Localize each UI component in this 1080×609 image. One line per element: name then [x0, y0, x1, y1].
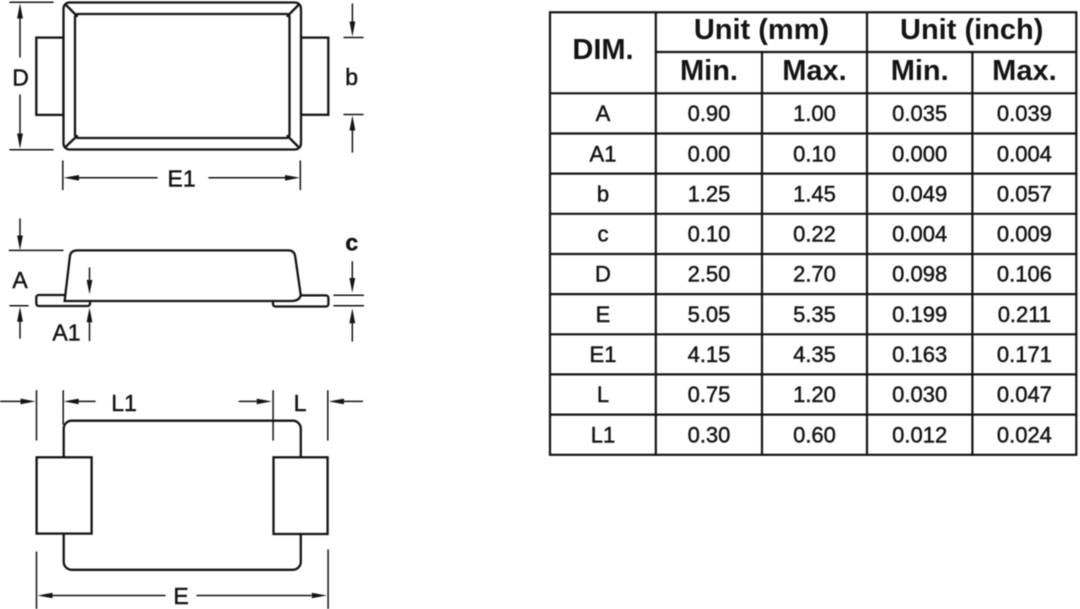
- svg-text:0.90: 0.90: [688, 101, 731, 126]
- svg-text:0.030: 0.030: [892, 382, 947, 407]
- svg-text:b: b: [597, 181, 609, 206]
- svg-text:0.163: 0.163: [892, 342, 947, 367]
- svg-text:E: E: [596, 302, 611, 327]
- svg-text:E: E: [173, 583, 188, 609]
- svg-text:A: A: [596, 101, 611, 126]
- svg-text:4.15: 4.15: [688, 342, 731, 367]
- svg-text:0.00: 0.00: [688, 141, 731, 166]
- svg-text:2.50: 2.50: [688, 262, 731, 287]
- svg-text:c: c: [598, 222, 609, 247]
- svg-text:0.047: 0.047: [997, 382, 1052, 407]
- svg-text:A: A: [12, 267, 28, 293]
- svg-text:Min.: Min.: [680, 55, 738, 87]
- svg-text:0.30: 0.30: [688, 422, 731, 447]
- svg-text:1.45: 1.45: [793, 181, 836, 206]
- svg-text:L1: L1: [111, 390, 137, 416]
- svg-text:L1: L1: [591, 422, 615, 447]
- svg-text:0.004: 0.004: [997, 141, 1052, 166]
- svg-text:1.00: 1.00: [793, 101, 836, 126]
- svg-text:L: L: [597, 382, 609, 407]
- svg-text:0.60: 0.60: [793, 422, 836, 447]
- svg-text:0.22: 0.22: [793, 222, 836, 247]
- svg-text:0.211: 0.211: [998, 302, 1051, 327]
- svg-text:5.35: 5.35: [793, 302, 836, 327]
- svg-text:0.000: 0.000: [892, 141, 947, 166]
- svg-text:0.004: 0.004: [892, 222, 947, 247]
- svg-text:4.35: 4.35: [793, 342, 836, 367]
- svg-text:5.05: 5.05: [688, 302, 731, 327]
- svg-text:0.039: 0.039: [997, 101, 1052, 126]
- svg-text:1.20: 1.20: [793, 382, 836, 407]
- svg-text:0.199: 0.199: [892, 302, 947, 327]
- svg-text:0.035: 0.035: [892, 101, 947, 126]
- svg-text:Max.: Max.: [782, 55, 846, 87]
- svg-text:D: D: [595, 262, 611, 287]
- svg-text:0.75: 0.75: [688, 382, 731, 407]
- svg-text:b: b: [345, 64, 358, 90]
- svg-text:0.106: 0.106: [997, 262, 1052, 287]
- svg-text:0.10: 0.10: [793, 141, 836, 166]
- svg-text:0.024: 0.024: [997, 422, 1052, 447]
- svg-text:0.098: 0.098: [892, 262, 947, 287]
- svg-text:0.009: 0.009: [997, 222, 1052, 247]
- svg-text:0.171: 0.171: [997, 342, 1052, 367]
- svg-text:Min.: Min.: [891, 55, 949, 87]
- svg-text:Unit (mm): Unit (mm): [694, 14, 829, 46]
- svg-text:1.25: 1.25: [688, 181, 731, 206]
- svg-text:L: L: [294, 390, 307, 416]
- svg-text:0.049: 0.049: [892, 181, 947, 206]
- svg-text:0.10: 0.10: [688, 222, 731, 247]
- svg-text:A1: A1: [590, 141, 617, 166]
- svg-text:D: D: [12, 64, 29, 90]
- svg-text:0.012: 0.012: [892, 422, 947, 447]
- svg-text:Max.: Max.: [992, 55, 1056, 87]
- svg-text:E1: E1: [168, 166, 196, 192]
- svg-text:Unit (inch): Unit (inch): [900, 14, 1043, 46]
- svg-text:E1: E1: [590, 342, 617, 367]
- svg-text:2.70: 2.70: [793, 262, 836, 287]
- svg-text:A1: A1: [52, 320, 80, 346]
- svg-text:DIM.: DIM.: [572, 34, 633, 66]
- svg-text:c: c: [345, 229, 358, 255]
- svg-text:0.057: 0.057: [997, 181, 1052, 206]
